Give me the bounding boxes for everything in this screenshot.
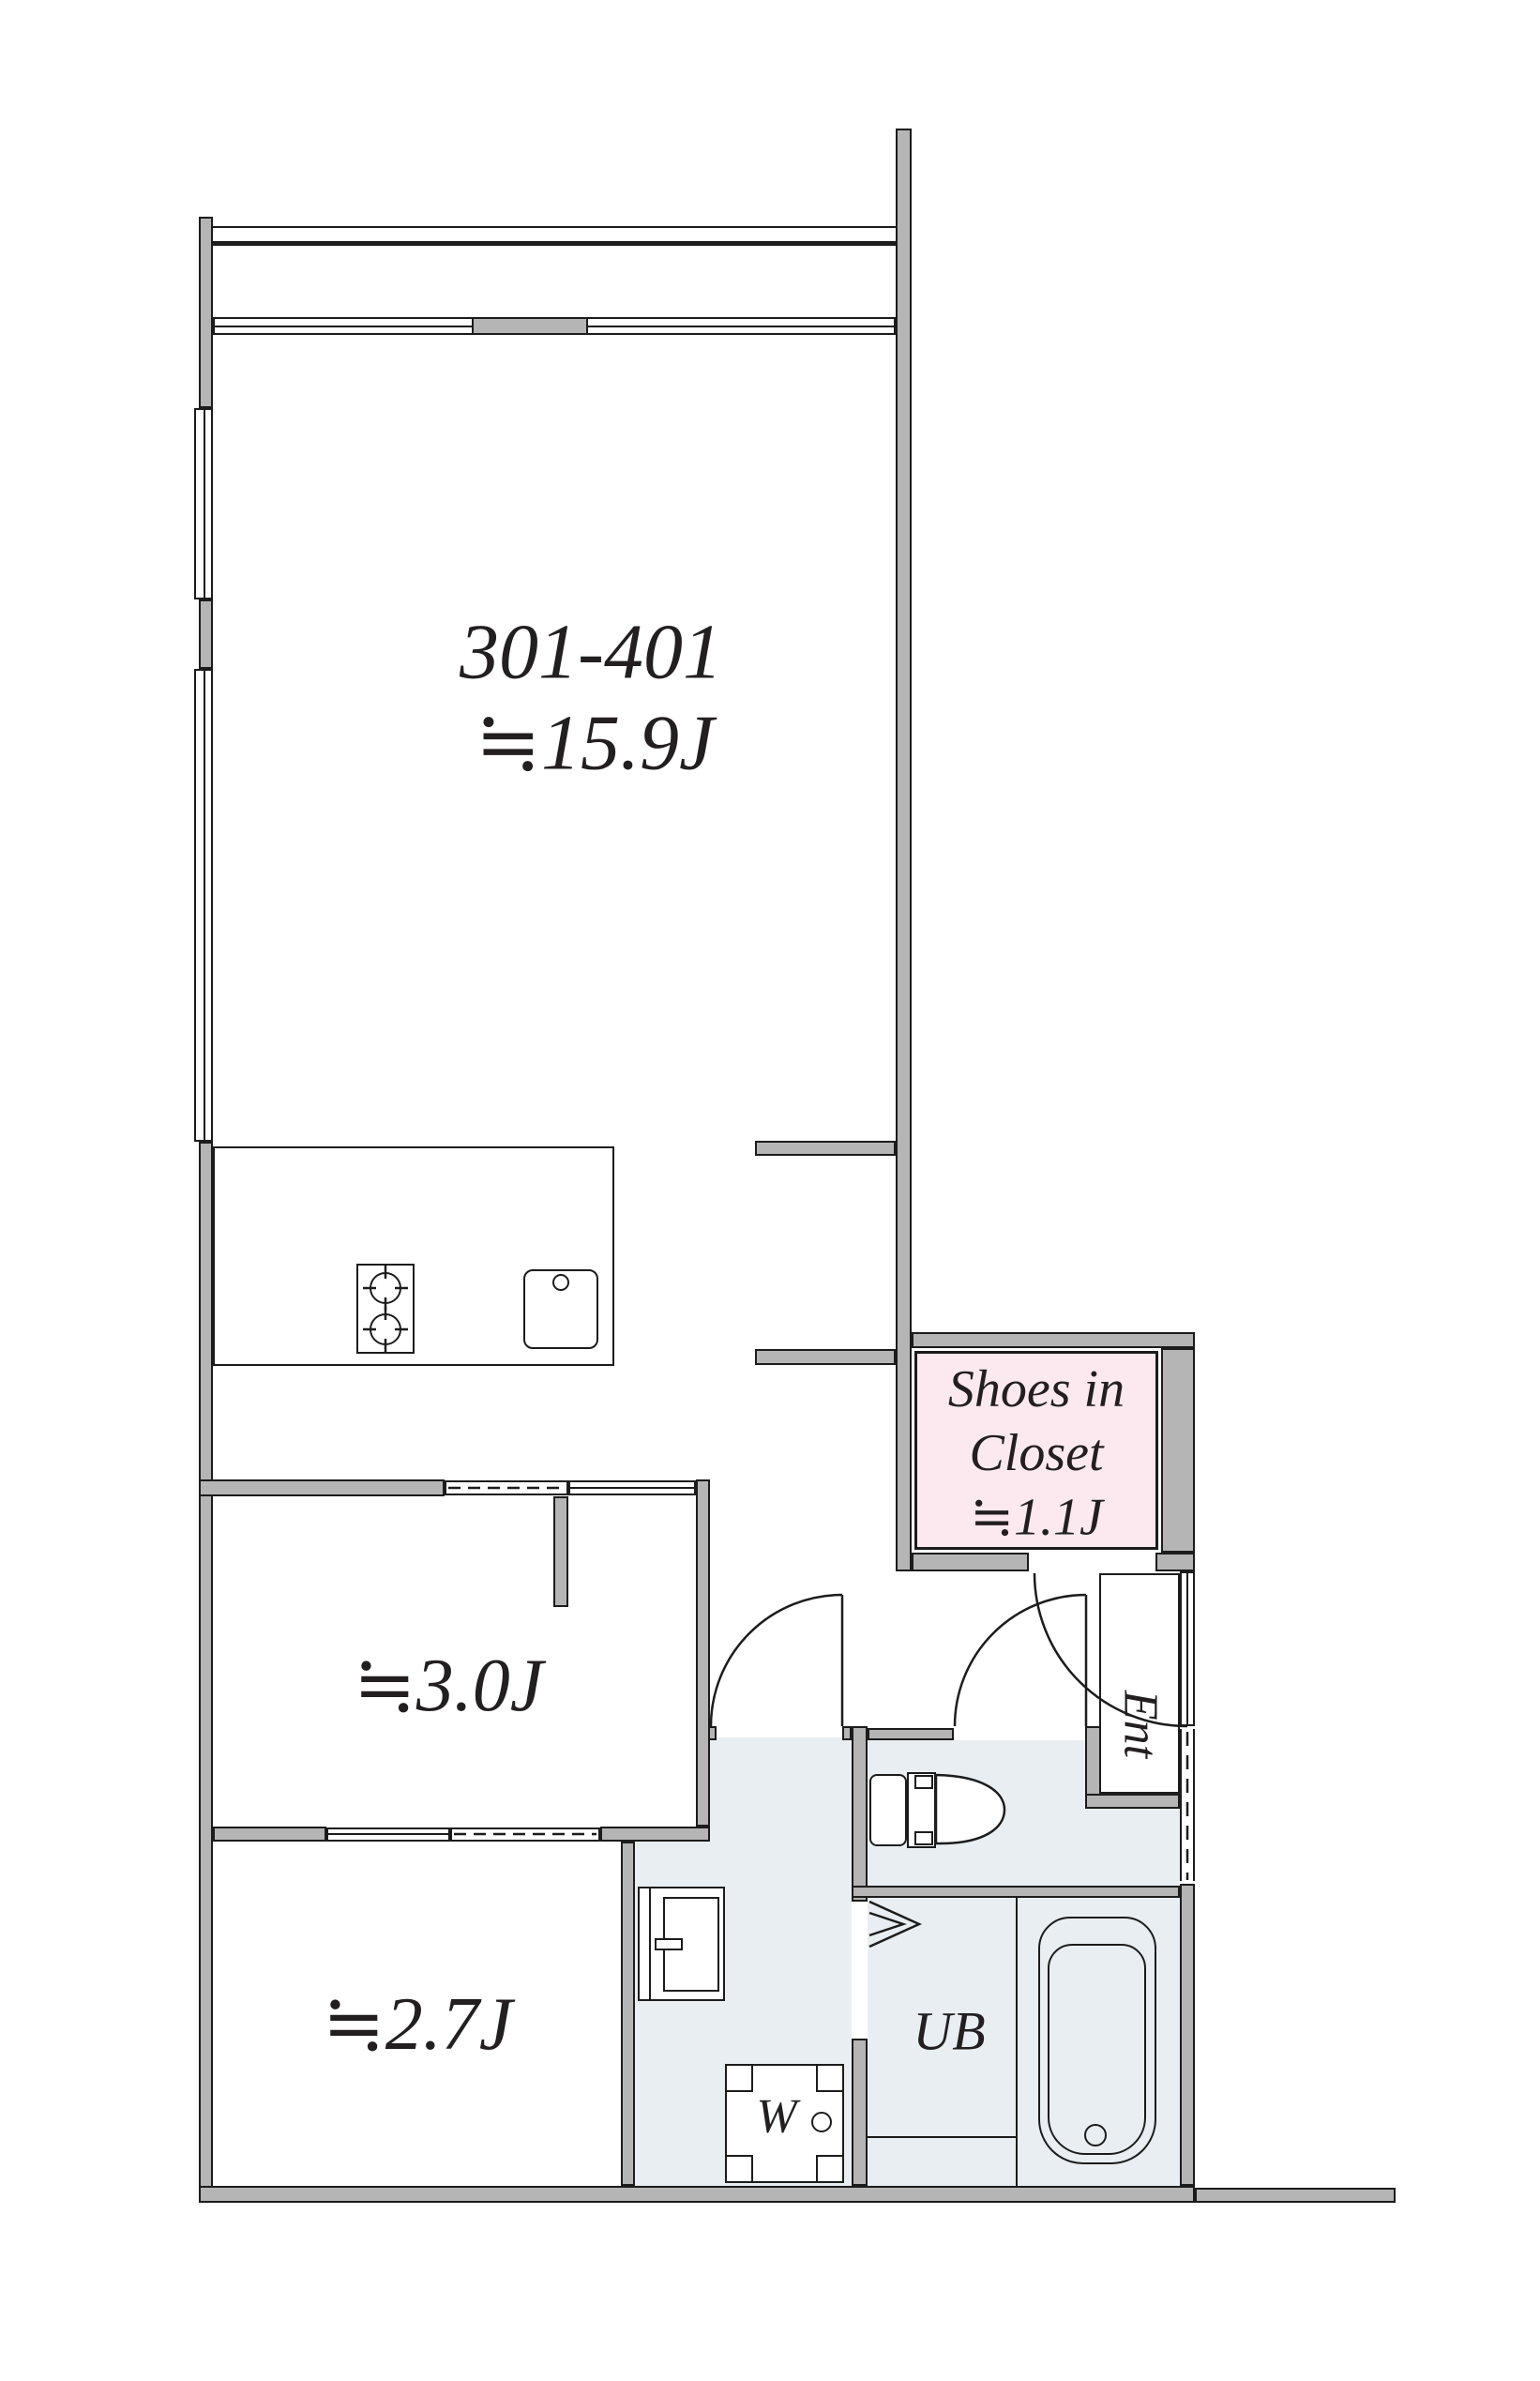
panel-line xyxy=(570,1487,694,1489)
wall-left-a xyxy=(199,217,213,408)
panel-line xyxy=(328,1833,448,1835)
side-window-lower xyxy=(194,669,213,1142)
wall-closet-top xyxy=(912,1332,1195,1348)
washer-pan-corner xyxy=(816,2155,844,2183)
wall-room3-bottom-right xyxy=(600,1827,710,1842)
wall-hall-door-jamb-left xyxy=(708,1726,717,1740)
wall-room2-right xyxy=(621,1842,635,2186)
sliding-door-track-room3-bottom xyxy=(450,1827,600,1842)
bath-step-line xyxy=(868,2136,1016,2138)
wall-room3-bottom-left xyxy=(213,1827,326,1842)
sliding-door-track-room3-top xyxy=(445,1480,568,1495)
balcony-outer-line xyxy=(213,226,896,228)
vanity-edge-line xyxy=(649,1888,651,1999)
shoes-closet-label-line2: Closet xyxy=(969,1423,1103,1483)
washer-pan-corner xyxy=(725,2064,753,2092)
wall-room3-stub xyxy=(553,1496,568,1607)
stove-burner-icon xyxy=(370,1272,401,1304)
toilet-door-arc xyxy=(955,1595,1086,1726)
entrance-platform xyxy=(1099,1573,1180,1794)
wall-closet-bottom-left xyxy=(912,1553,1029,1571)
stove-burner-icon xyxy=(370,1313,401,1345)
window-sash-overlap xyxy=(472,319,588,333)
bath-divider-line xyxy=(1016,1898,1018,2186)
living-area-label: ≒15.9J xyxy=(476,696,715,789)
washer-drain-icon xyxy=(811,2112,832,2132)
sliding-window-top xyxy=(213,317,896,335)
wall-opening-dashed-channel xyxy=(1180,1729,1195,1881)
wall-left-b xyxy=(199,599,213,669)
washer-pan-corner xyxy=(725,2155,753,2183)
wall-entrance-bottom xyxy=(1085,1794,1180,1809)
vanity-faucet xyxy=(655,1938,683,1950)
shoes-closet-area-label: ≒1.1J xyxy=(970,1487,1103,1548)
wall-closet-bottom-right xyxy=(1155,1553,1195,1571)
wall-room3-top xyxy=(199,1479,445,1496)
shoes-closet-label-line1: Shoes in xyxy=(948,1359,1125,1419)
wall-washroom-bath xyxy=(852,2039,868,2186)
floor-plan: 301-401 ≒15.9J ≒3.0J ≒2.7J Shoes in Clos… xyxy=(0,0,1540,2381)
toilet-hinge xyxy=(914,1831,933,1845)
wall-hall-door-jamb-right xyxy=(842,1726,852,1740)
faucet-icon xyxy=(552,1274,569,1291)
room-3-0-label: ≒3.0J xyxy=(354,1641,544,1729)
wall-toilet-bottom xyxy=(852,1886,1180,1898)
sliding-door-panel-room3-top xyxy=(568,1480,696,1495)
room-2-7-label: ≒2.7J xyxy=(323,1979,513,2068)
window-track-line xyxy=(204,410,205,598)
bathtub-drain-icon xyxy=(1084,2124,1107,2146)
unit-number-label: 301-401 xyxy=(460,607,722,698)
door-leaf-line xyxy=(1186,1573,1188,1724)
washer-label: W xyxy=(756,2089,796,2145)
wall-left-c xyxy=(199,1142,213,2203)
wall-closet-right xyxy=(1161,1348,1195,1553)
balcony-inner-line xyxy=(213,241,896,246)
wall-toilet-top xyxy=(868,1728,954,1740)
wall-right-main xyxy=(896,129,912,1571)
wall-kitchen-stub-lower xyxy=(755,1349,896,1365)
side-window-upper xyxy=(194,408,213,599)
washroom-door-arc xyxy=(711,1595,842,1726)
wall-bottom xyxy=(199,2186,1195,2203)
toilet-tank xyxy=(869,1774,907,1846)
wall-right-lower xyxy=(1180,1884,1195,2186)
washer-pan-corner xyxy=(816,2064,844,2092)
entrance-label: Ent xyxy=(1113,1691,1169,1758)
unit-bath-label: UB xyxy=(913,2000,985,2063)
wall-toilet-left xyxy=(852,1726,868,1902)
front-door-leaf-channel xyxy=(1180,1571,1195,1726)
sliding-door-panel-room3-bottom xyxy=(326,1827,450,1842)
toilet-hinge xyxy=(914,1775,933,1789)
window-track-line xyxy=(204,671,205,1140)
wall-bottom-extension xyxy=(1195,2188,1396,2203)
wall-kitchen-stub-upper xyxy=(755,1141,896,1156)
wall-room3-right xyxy=(696,1479,710,1827)
